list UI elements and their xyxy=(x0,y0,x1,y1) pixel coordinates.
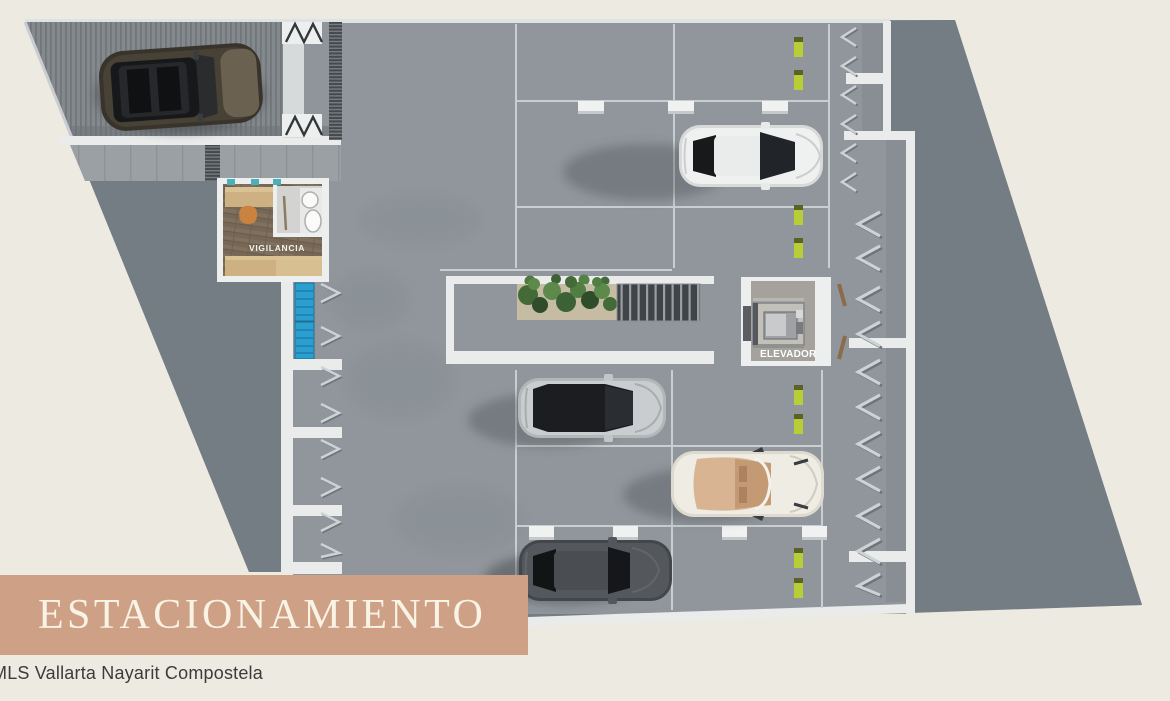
svg-text:ELEVADOR: ELEVADOR xyxy=(760,349,817,360)
svg-text:ESTACIONAMIENTO: ESTACIONAMIENTO xyxy=(38,592,486,638)
svg-text:MLS Vallarta Nayarit Compostel: MLS Vallarta Nayarit Compostela xyxy=(0,663,264,683)
svg-text:VIGILANCIA: VIGILANCIA xyxy=(249,243,305,253)
